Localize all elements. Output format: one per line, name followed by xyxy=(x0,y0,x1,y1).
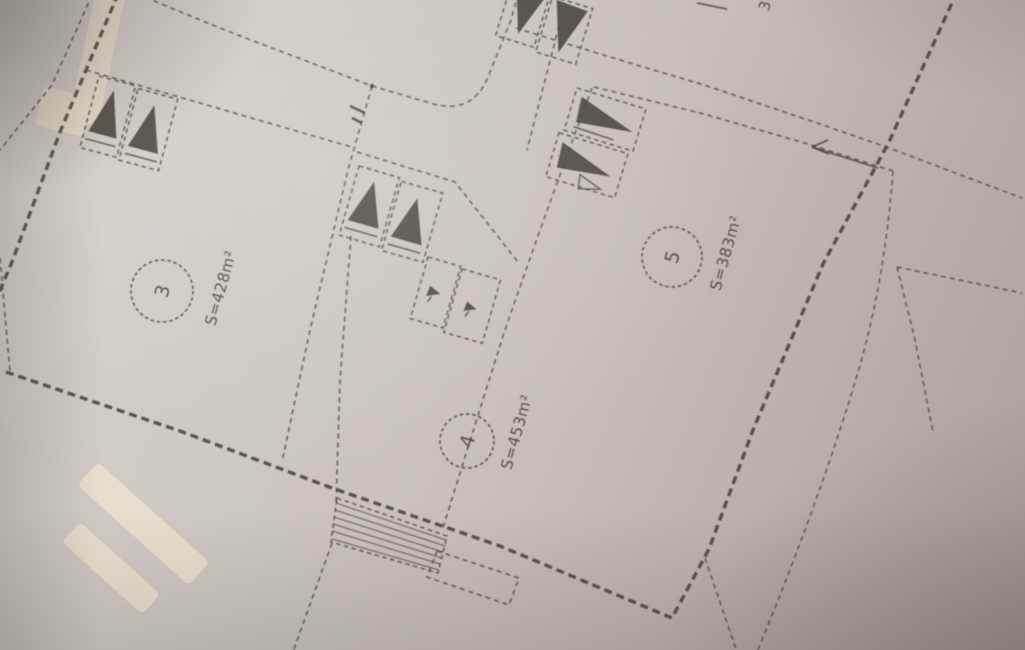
entrance-marker-plot4 xyxy=(338,166,443,262)
plot3-top-edge xyxy=(86,70,355,148)
marker-strip-top-line xyxy=(357,152,518,262)
line-parallel-right xyxy=(757,171,893,650)
leader-arrow-icon xyxy=(812,140,878,168)
plot3-area: S=428m² xyxy=(202,248,241,327)
plan-drawing: 3 3 S=428m² 4 S=453m² 5 S=383m² xyxy=(0,0,1025,650)
entrance-marker-plot5 xyxy=(545,87,646,201)
plot3-label: 3 S=428m² xyxy=(131,248,240,327)
plot5-area: S=383m² xyxy=(707,213,746,292)
utility-squares xyxy=(409,257,501,343)
right-parcel-top-edge xyxy=(897,267,1022,293)
edge-label-fragment: 3 xyxy=(697,0,775,13)
plot4-area: S=453m² xyxy=(498,392,537,471)
plot3-plot4-divider xyxy=(282,86,372,462)
connector-top-markers xyxy=(527,26,559,150)
plot5-number: 5 xyxy=(661,248,685,266)
edge-label-fragment-text: 3 xyxy=(755,0,775,13)
site-plan-photo: 3 3 S=428m² 4 S=453m² 5 S=383m² xyxy=(0,0,1025,650)
plot4-number: 4 xyxy=(456,432,480,450)
plot3-number: 3 xyxy=(151,282,175,300)
plot4-bottom-left-edge xyxy=(293,543,332,650)
marker-strip-left-line xyxy=(336,236,351,505)
tape-marks xyxy=(34,0,209,614)
street-left-edge xyxy=(137,0,518,106)
right-parcel-left-edge xyxy=(897,267,933,432)
line-bottom-right-v xyxy=(705,558,737,650)
entrance-marker-top xyxy=(494,0,593,64)
plot5-label: 5 S=383m² xyxy=(642,213,745,292)
plot4-label: 4 S=453m² xyxy=(440,392,536,471)
